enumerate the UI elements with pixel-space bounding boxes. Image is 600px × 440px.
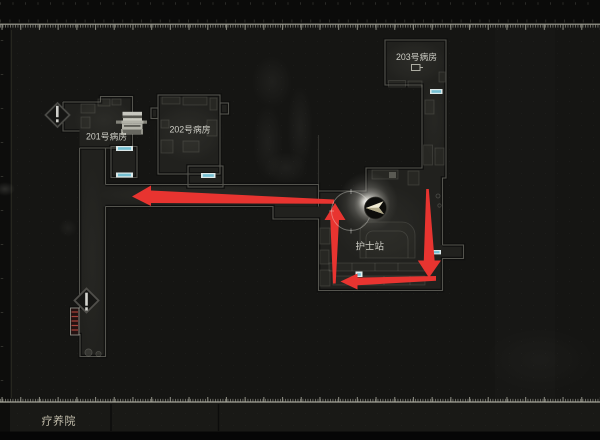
svg-text:203号病房: 203号病房 (396, 51, 437, 62)
svg-text:疗养院: 疗养院 (42, 414, 77, 428)
svg-text:护士站: 护士站 (356, 241, 385, 253)
svg-text:201号病房: 201号病房 (86, 131, 127, 142)
svg-text:202号病房: 202号病房 (170, 124, 211, 135)
